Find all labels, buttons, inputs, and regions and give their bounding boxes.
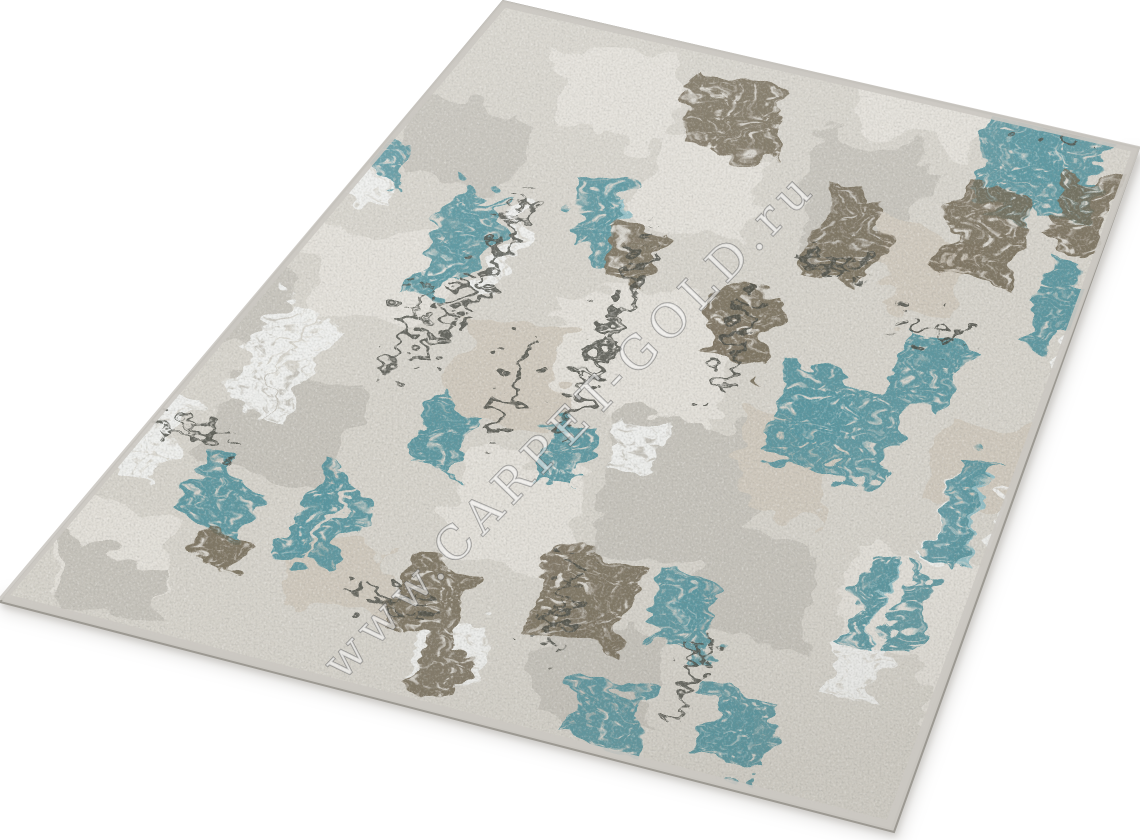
rug-photo-svg: www.CARPET-GOLD.ru	[0, 0, 1140, 840]
product-photo: www.CARPET-GOLD.ru	[0, 0, 1140, 840]
